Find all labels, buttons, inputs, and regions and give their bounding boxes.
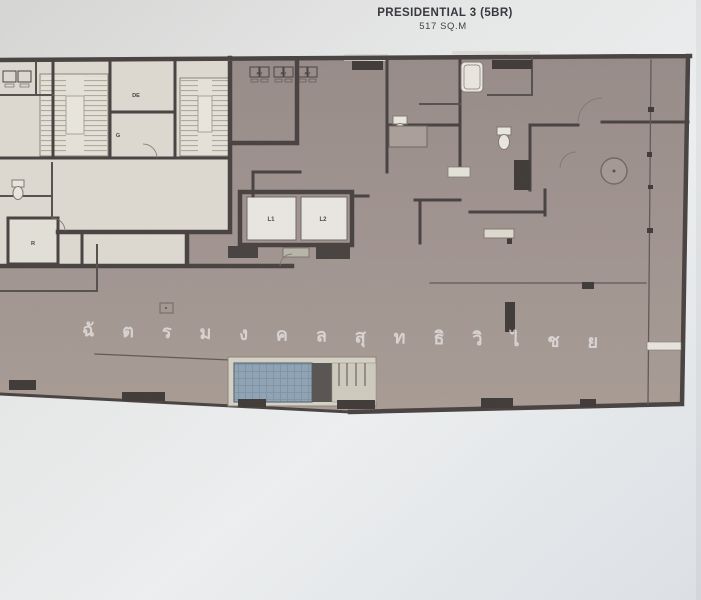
floor-plan-svg: PRESIDENTIAL 3 (5BR) 517 SQ.M <box>0 0 701 600</box>
floorplan-photo: PRESIDENTIAL 3 (5BR) 517 SQ.M <box>0 0 701 600</box>
photo-grain <box>0 0 701 600</box>
photo-edge-shade <box>696 0 701 600</box>
